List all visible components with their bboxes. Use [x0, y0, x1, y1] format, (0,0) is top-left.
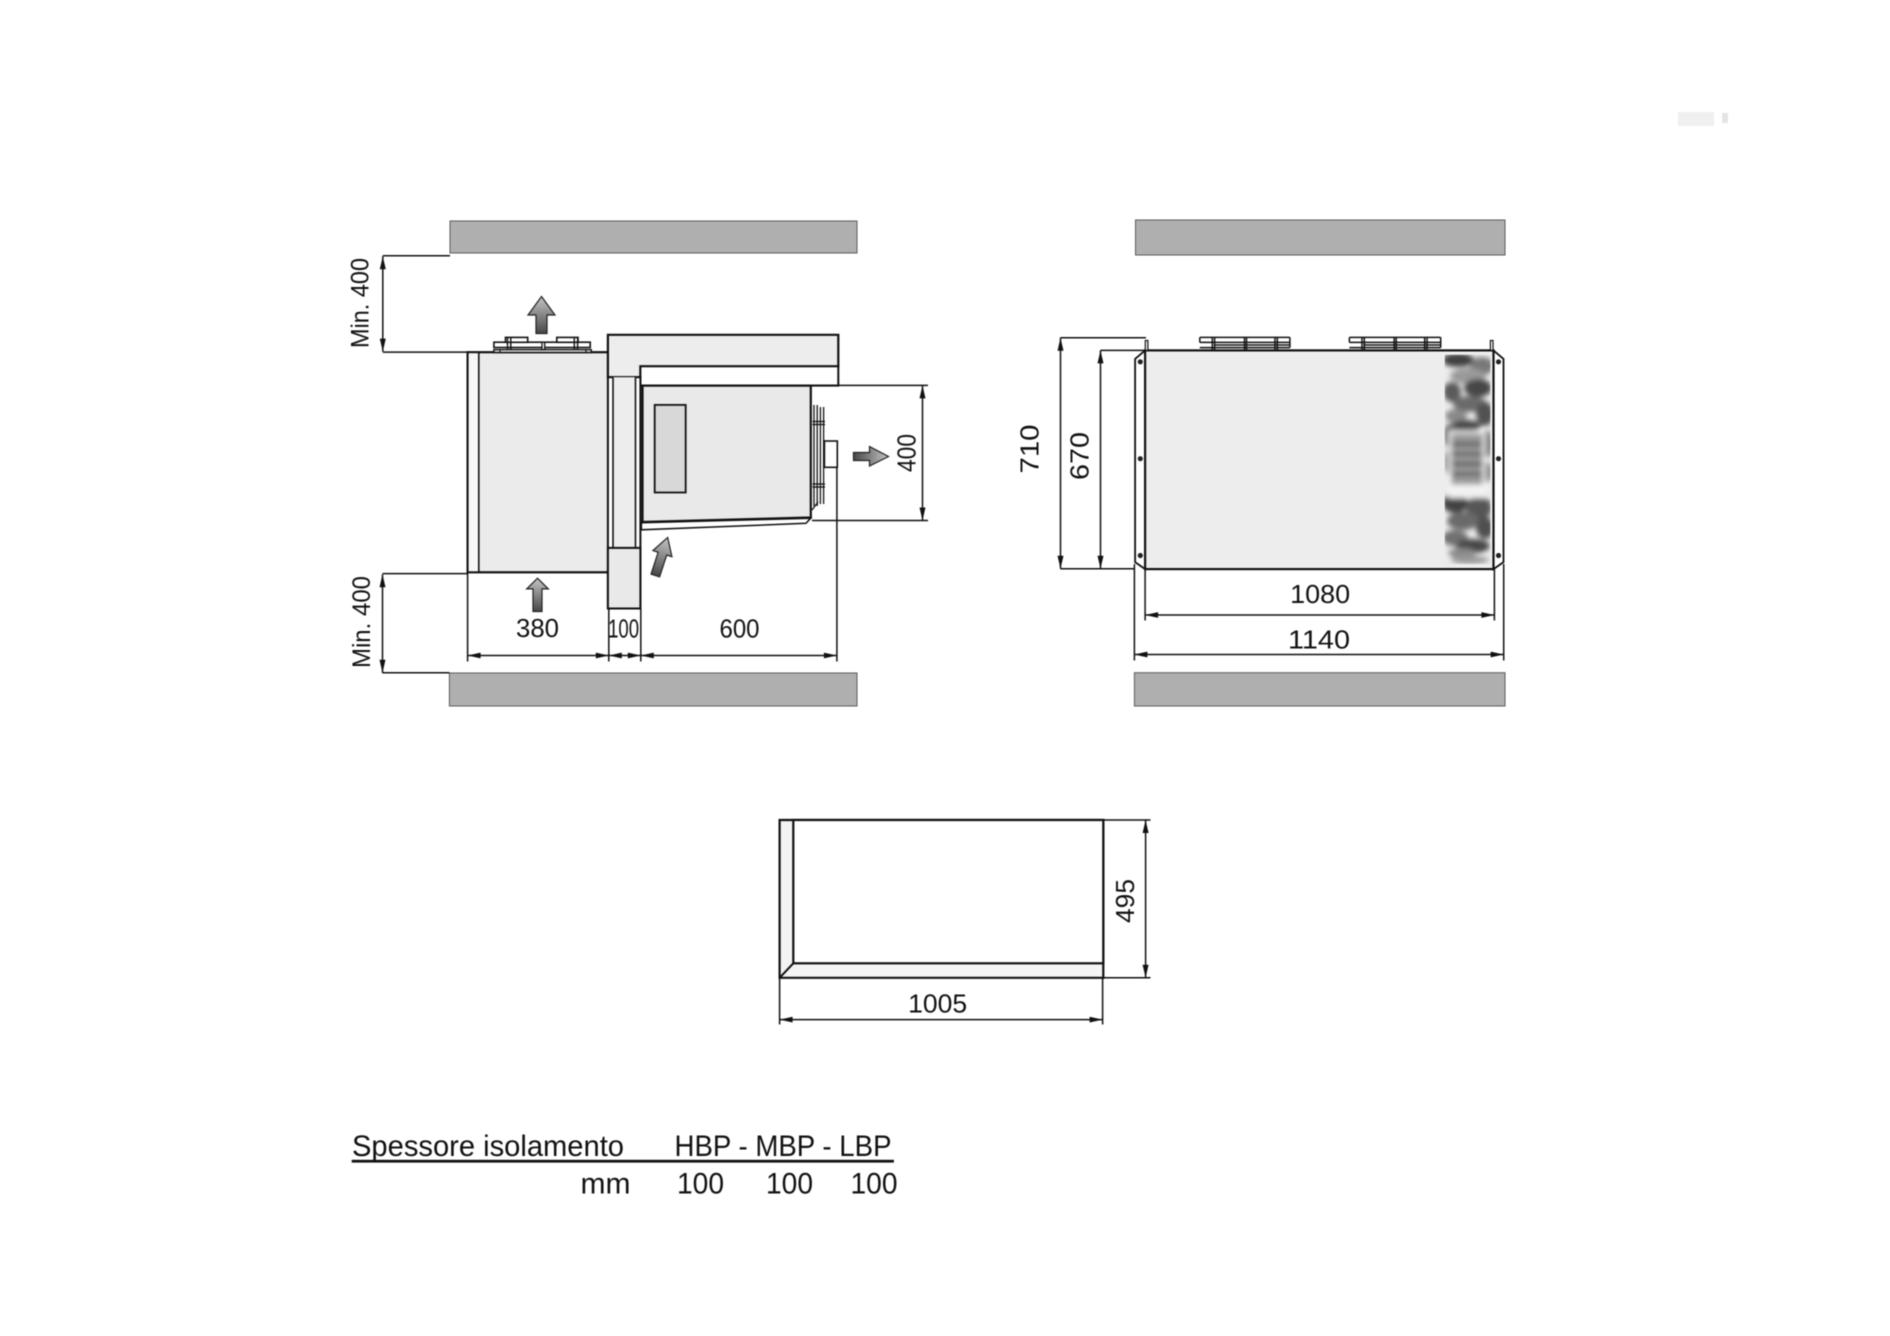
svg-text:100: 100	[851, 1168, 898, 1201]
svg-text:100: 100	[766, 1168, 813, 1201]
svg-text:600: 600	[720, 616, 760, 644]
svg-text:mm: mm	[581, 1168, 631, 1201]
svg-text:380: 380	[516, 615, 559, 643]
svg-text:495: 495	[1112, 879, 1140, 923]
svg-text:100: 100	[677, 1168, 724, 1201]
svg-text:HBP - MBP - LBP: HBP - MBP - LBP	[675, 1130, 892, 1163]
svg-text:Spessore isolamento: Spessore isolamento	[352, 1130, 624, 1163]
svg-text:1005: 1005	[908, 990, 967, 1018]
svg-text:100: 100	[608, 616, 639, 644]
svg-text:1140: 1140	[1288, 626, 1350, 654]
svg-text:Min. 400: Min. 400	[348, 576, 376, 668]
svg-text:670: 670	[1067, 432, 1095, 480]
svg-text:Min. 400: Min. 400	[347, 258, 375, 348]
svg-text:710: 710	[1017, 425, 1045, 474]
svg-text:400: 400	[894, 434, 922, 472]
svg-text:1080: 1080	[1290, 581, 1350, 609]
